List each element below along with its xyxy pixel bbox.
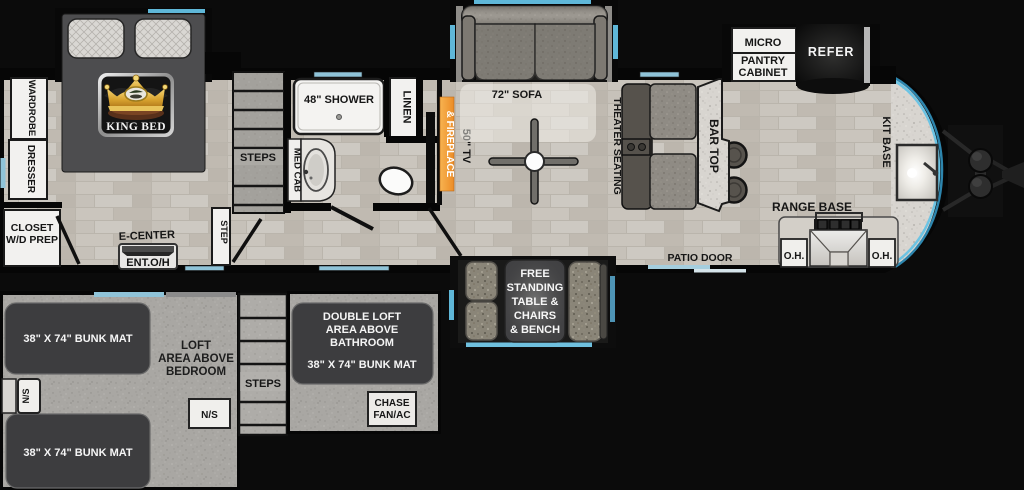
svg-text:O.H.: O.H. [872, 251, 893, 262]
svg-text:48" SHOWER: 48" SHOWER [304, 94, 374, 106]
svg-text:PANTRY: PANTRY [741, 55, 786, 67]
svg-text:& FIREPLACE: & FIREPLACE [444, 111, 455, 178]
svg-text:CABINET: CABINET [739, 67, 788, 79]
svg-text:PATIO DOOR: PATIO DOOR [668, 252, 733, 264]
svg-text:O.H.: O.H. [784, 251, 805, 262]
svg-text:STEP: STEP [219, 220, 229, 244]
svg-text:RANGE BASE: RANGE BASE [772, 200, 852, 214]
svg-text:N/S: N/S [21, 388, 31, 403]
svg-text:STEPS: STEPS [245, 378, 281, 390]
svg-text:WARDROBE: WARDROBE [26, 80, 37, 136]
svg-text:38" X 74" BUNK MAT: 38" X 74" BUNK MAT [23, 447, 133, 459]
svg-text:STEPS: STEPS [240, 152, 276, 164]
svg-text:KING BED: KING BED [106, 121, 166, 133]
svg-text:ENT.O/H: ENT.O/H [126, 257, 169, 269]
svg-text:BEDROOM: BEDROOM [166, 366, 226, 378]
svg-text:N/S: N/S [201, 410, 218, 421]
svg-text:MICRO: MICRO [745, 37, 782, 49]
svg-text:TABLE &: TABLE & [512, 296, 559, 308]
svg-text:STANDING: STANDING [507, 282, 564, 294]
svg-text:LINEN: LINEN [401, 91, 413, 124]
svg-text:W/D PREP: W/D PREP [6, 234, 58, 246]
svg-text:CHASE: CHASE [374, 398, 409, 409]
svg-text:CHAIRS: CHAIRS [514, 310, 556, 322]
svg-text:FREE: FREE [520, 268, 549, 280]
svg-text:& BENCH: & BENCH [510, 324, 560, 336]
svg-text:AREA ABOVE: AREA ABOVE [326, 324, 399, 336]
svg-text:72" SOFA: 72" SOFA [492, 89, 543, 101]
svg-text:KIT BASE: KIT BASE [880, 116, 892, 167]
svg-text:BAR TOP: BAR TOP [707, 119, 721, 173]
svg-text:THEATER SEATING: THEATER SEATING [611, 97, 623, 195]
svg-text:E-CENTER: E-CENTER [119, 229, 176, 243]
svg-text:LOFT: LOFT [181, 340, 211, 352]
svg-text:FAN/AC: FAN/AC [373, 410, 410, 421]
svg-text:BATHROOM: BATHROOM [330, 337, 394, 349]
svg-text:CLOSET: CLOSET [11, 222, 54, 234]
svg-text:DRESSER: DRESSER [25, 145, 36, 194]
svg-text:AREA ABOVE: AREA ABOVE [158, 353, 234, 365]
svg-text:38" X 74" BUNK MAT: 38" X 74" BUNK MAT [23, 333, 133, 345]
svg-text:DOUBLE LOFT: DOUBLE LOFT [323, 311, 401, 323]
svg-text:38" X 74" BUNK MAT: 38" X 74" BUNK MAT [307, 359, 417, 371]
svg-text:REFER: REFER [808, 45, 854, 59]
